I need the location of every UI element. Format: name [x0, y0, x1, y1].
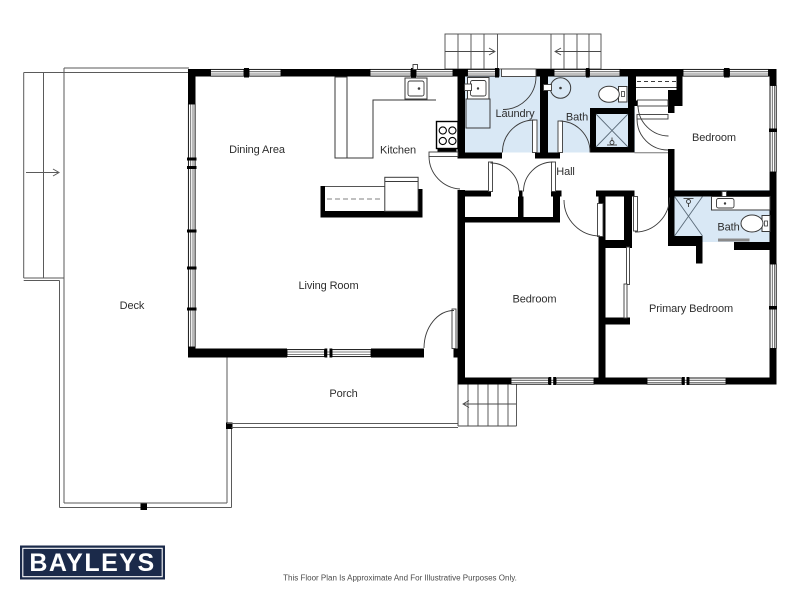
svg-text:Hall: Hall	[556, 166, 575, 178]
svg-text:Porch: Porch	[329, 388, 357, 400]
svg-text:Laundry: Laundry	[495, 108, 535, 120]
svg-text:Bath: Bath	[566, 112, 588, 124]
svg-text:Primary Bedroom: Primary Bedroom	[649, 303, 733, 315]
svg-text:Living Room: Living Room	[298, 280, 358, 292]
svg-text:Bedroom: Bedroom	[513, 294, 557, 306]
svg-text:Kitchen: Kitchen	[380, 145, 416, 157]
svg-text:This Floor Plan Is Approximate: This Floor Plan Is Approximate And For I…	[283, 574, 517, 583]
svg-text:Dining Area: Dining Area	[229, 144, 286, 156]
svg-text:Bedroom: Bedroom	[692, 132, 736, 144]
svg-text:Deck: Deck	[120, 300, 145, 312]
svg-text:BAYLEYS: BAYLEYS	[29, 549, 155, 577]
svg-text:Bath: Bath	[717, 222, 739, 234]
